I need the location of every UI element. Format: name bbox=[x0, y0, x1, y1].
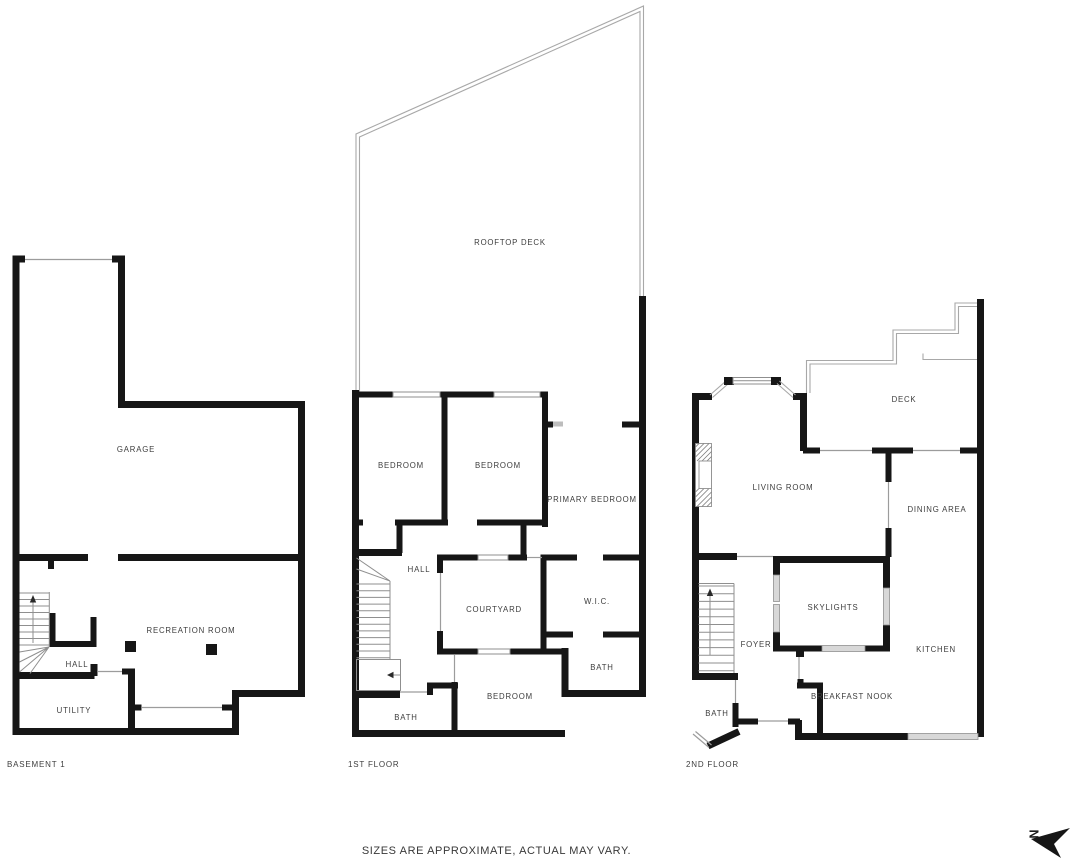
window bbox=[478, 649, 510, 654]
room-label-bath-lower: BATH bbox=[394, 713, 417, 722]
window bbox=[774, 605, 780, 633]
stair-direction-arrow bbox=[387, 672, 394, 678]
room-label-recreation-room: RECREATION ROOM bbox=[147, 626, 236, 635]
basement-walls bbox=[13, 256, 304, 732]
room-label-bedroom-lower: BEDROOM bbox=[487, 692, 533, 701]
window bbox=[478, 555, 508, 560]
window bbox=[494, 392, 540, 397]
room-label-wic: W.I.C. bbox=[584, 597, 610, 606]
room-label-kitchen: KITCHEN bbox=[916, 645, 956, 654]
room-label-dining-area: DINING AREA bbox=[907, 505, 966, 514]
room-label-living-room: LIVING ROOM bbox=[753, 483, 814, 492]
sliding-door bbox=[553, 422, 563, 427]
window bbox=[774, 575, 780, 602]
room-label-basement-hall: HALL bbox=[66, 660, 89, 669]
room-label-rooftop-deck: ROOFTOP DECK bbox=[474, 238, 546, 247]
room-label-foyer: FOYER bbox=[741, 640, 772, 649]
room-label-utility: UTILITY bbox=[57, 706, 92, 715]
window bbox=[822, 646, 865, 652]
column-post bbox=[206, 644, 217, 655]
room-label-courtyard: COURTYARD bbox=[466, 605, 522, 614]
room-label-primary-bedroom: PRIMARY BEDROOM bbox=[547, 495, 637, 504]
first-floor-openings bbox=[400, 558, 542, 693]
stair-direction-arrow bbox=[30, 595, 36, 603]
window bbox=[908, 734, 978, 740]
deck-outline bbox=[807, 303, 978, 393]
disclaimer-text: SIZES ARE APPROXIMATE, ACTUAL MAY VARY. bbox=[362, 845, 631, 857]
stair-direction-arrow bbox=[707, 589, 713, 597]
room-label-skylights: SKYLIGHTS bbox=[808, 603, 859, 612]
compass: N bbox=[1027, 828, 1071, 858]
floor-plan-drawing: GARAGE RECREATION ROOM HALL UTILITY BASE… bbox=[0, 0, 1074, 864]
second-floor-walls bbox=[692, 299, 981, 746]
room-label-first-hall: HALL bbox=[408, 565, 431, 574]
first-floor-stairs bbox=[357, 558, 401, 691]
window bbox=[393, 392, 440, 397]
second-floor-plan: LIVING ROOM DECK DINING AREA SKYLIGHTS F… bbox=[686, 299, 981, 769]
room-label-bath-upper: BATH bbox=[590, 663, 613, 672]
rooftop-deck-outline bbox=[356, 6, 644, 392]
column-post bbox=[125, 641, 136, 652]
room-label-deck: DECK bbox=[892, 395, 917, 404]
room-label-bedroom-mid: BEDROOM bbox=[475, 461, 521, 470]
second-floor-stairs bbox=[699, 584, 735, 674]
window bbox=[884, 588, 890, 625]
floor-plan-page: GARAGE RECREATION ROOM HALL UTILITY BASE… bbox=[0, 0, 1074, 864]
basement-stairs bbox=[20, 592, 50, 674]
first-floor-plan: ROOFTOP DECK BEDROOM BEDROOM PRIMARY BED… bbox=[348, 6, 646, 769]
room-label-second-bath: BATH bbox=[705, 709, 728, 718]
basement-plan: GARAGE RECREATION ROOM HALL UTILITY BASE… bbox=[7, 256, 303, 770]
second-floor-windows bbox=[774, 575, 979, 740]
room-label-garage: GARAGE bbox=[117, 445, 155, 454]
floor-title-first: 1ST FLOOR bbox=[348, 760, 400, 769]
floor-title-second: 2ND FLOOR bbox=[686, 760, 739, 769]
second-floor-openings bbox=[693, 451, 960, 748]
fireplace bbox=[696, 444, 712, 507]
bay-window bbox=[710, 377, 796, 398]
floor-title-basement: BASEMENT 1 bbox=[7, 760, 66, 769]
room-label-breakfast-nook: BREAKFAST NOOK bbox=[811, 692, 893, 701]
room-label-bedroom-left: BEDROOM bbox=[378, 461, 424, 470]
